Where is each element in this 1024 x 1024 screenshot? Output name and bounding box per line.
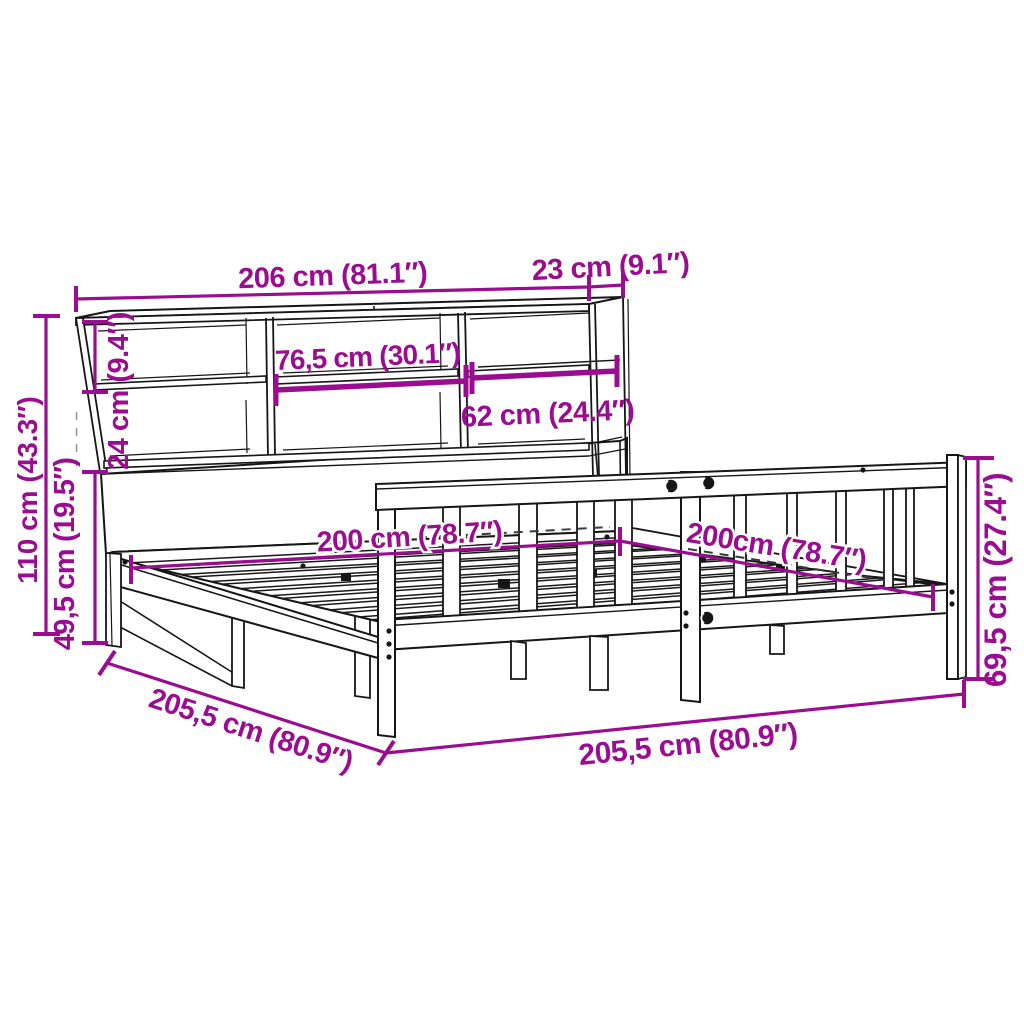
svg-text:110 cm (43.3″): 110 cm (43.3″) <box>12 396 43 584</box>
svg-text:24 cm (9.4″): 24 cm (9.4″) <box>103 312 135 470</box>
svg-text:206 cm (81.1″): 206 cm (81.1″) <box>238 257 428 296</box>
svg-text:69,5 cm (27.4″): 69,5 cm (27.4″) <box>977 473 1013 687</box>
svg-text:49,5 cm (19.5″): 49,5 cm (19.5″) <box>49 458 81 650</box>
